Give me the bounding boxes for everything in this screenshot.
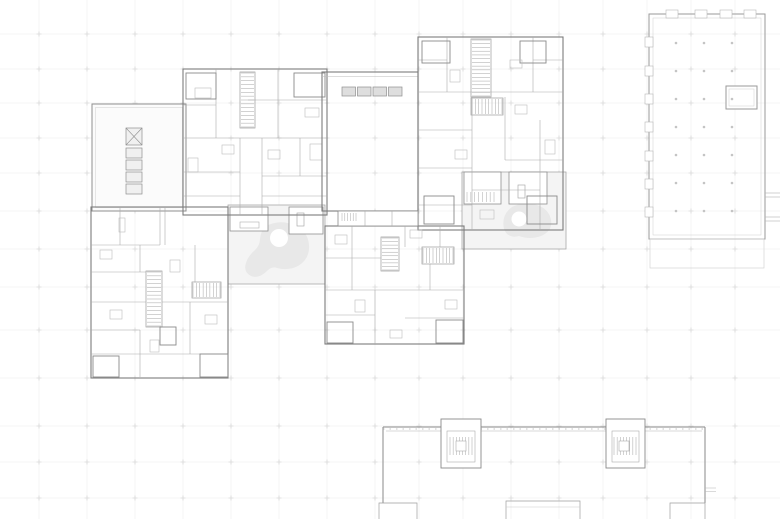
column-dot [675, 98, 678, 101]
column-dot [731, 182, 734, 185]
column-dot [703, 70, 706, 73]
fixture [355, 300, 365, 312]
right-terrace-shaft [518, 185, 525, 198]
wing-b-mid-stair [472, 99, 502, 114]
stair-core-1-landing [456, 441, 466, 451]
wing-d-balcony [327, 322, 353, 343]
floor-plan-drawing [0, 0, 780, 519]
wing-a-balcony [186, 73, 216, 99]
wing-d-stair-shaft [381, 237, 399, 271]
louver-box-1 [126, 148, 142, 158]
wing-d-outline [325, 226, 464, 344]
column-dot [731, 126, 734, 129]
window-notch [720, 10, 732, 18]
fixture [445, 300, 457, 309]
right-pond-island [512, 212, 527, 227]
wing-c-stair-2 [193, 283, 220, 297]
wing-c-stair [147, 272, 161, 326]
wing-d-balcony-2 [436, 320, 463, 343]
wing-c-balcony [93, 356, 119, 377]
apartment-wing-a [183, 69, 327, 215]
skylight-4 [389, 87, 403, 96]
wing-c-balcony-2 [200, 354, 228, 377]
window-notch [645, 151, 653, 161]
floor-plan-sheet [0, 0, 780, 519]
warehouse-dock-box [726, 86, 757, 109]
fixture [390, 330, 402, 338]
fixture [195, 88, 211, 98]
wing-d-stair-2 [423, 248, 453, 263]
right-terrace-room-2 [509, 172, 547, 204]
column-dot [675, 126, 678, 129]
fixture [110, 310, 122, 319]
window-notch [645, 122, 653, 132]
column-dot [675, 182, 678, 185]
fixture [150, 340, 159, 352]
fixture [310, 144, 322, 160]
skylight-1 [342, 87, 356, 96]
column-dot [703, 126, 706, 129]
window-notch [645, 207, 653, 217]
apartment-wing-d [325, 211, 464, 344]
wing-c-outline [91, 207, 228, 378]
column-dot [703, 182, 706, 185]
left-terrace-room-2 [289, 207, 323, 234]
warehouse-hall [645, 10, 780, 268]
wing-a-balcony-2 [294, 73, 325, 97]
atrium-hall [322, 72, 418, 211]
fixture [170, 260, 180, 272]
fixture [455, 150, 467, 159]
window-notch [645, 94, 653, 104]
fixture [335, 235, 347, 244]
window-notch [645, 179, 653, 189]
louver-box-2 [126, 160, 142, 170]
warehouse-outline [649, 14, 765, 239]
fixture [450, 70, 460, 82]
column-dot [731, 42, 734, 45]
apartment-wing-c [91, 207, 228, 378]
window-notch [645, 66, 653, 76]
fixture [188, 158, 198, 172]
wing-d-stair-shaft-2 [422, 247, 454, 264]
fixture [268, 150, 280, 159]
window-notch [645, 37, 653, 47]
fixture [305, 108, 319, 117]
left-terrace-bench [240, 222, 259, 228]
fixture [222, 145, 234, 154]
column-dot [703, 42, 706, 45]
stair-core-2-landing [619, 441, 629, 451]
lower-bay-right [670, 503, 705, 519]
roof-terraces [92, 104, 566, 284]
skylight-2 [358, 87, 372, 96]
left-pond-island [270, 229, 288, 247]
wing-b-balcony-3 [424, 196, 454, 224]
wing-b-mid-stair-shaft [471, 98, 503, 115]
column-grid-dots [675, 42, 734, 213]
column-dot [731, 98, 734, 101]
lower-bay-left [379, 503, 417, 519]
column-dot [675, 70, 678, 73]
fixture [515, 105, 527, 114]
wing-b-stair [472, 40, 490, 96]
warehouse-apron [650, 239, 764, 268]
wing-a-stair [241, 73, 254, 127]
skylight-3 [373, 87, 387, 96]
fixture [100, 250, 112, 259]
fixture [545, 140, 555, 154]
louver-box-3 [126, 172, 142, 182]
column-dot [731, 154, 734, 157]
column-dot [703, 98, 706, 101]
lower-bay-mid [506, 501, 580, 519]
column-dot [703, 154, 706, 157]
wing-d-upper-strip [338, 211, 418, 226]
column-dot [675, 210, 678, 213]
fixture [410, 230, 422, 238]
column-dot [703, 210, 706, 213]
louver-box-4 [126, 184, 142, 194]
column-dot [731, 70, 734, 73]
lower-building [379, 419, 716, 519]
wing-d-stair [382, 238, 398, 270]
window-notch [695, 10, 707, 18]
warehouse-inner-wall [653, 18, 761, 235]
fixture [205, 315, 217, 324]
page: { "colors": { "background": "#ffffff", "… [0, 0, 780, 519]
column-dot [675, 42, 678, 45]
column-dot [675, 154, 678, 157]
window-notch [666, 10, 678, 18]
column-dot [731, 210, 734, 213]
window-notch [744, 10, 756, 18]
